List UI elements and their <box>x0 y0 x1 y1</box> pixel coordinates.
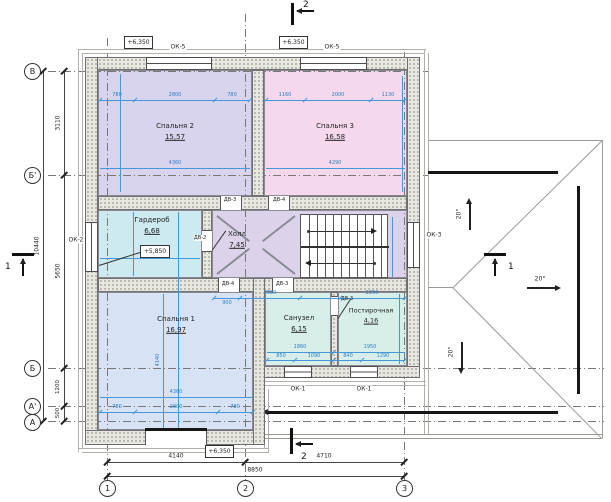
door-tag-dv3: ДВ-3 <box>276 281 288 287</box>
room-area: 15,57 <box>165 133 185 141</box>
dim-left: 500 <box>55 408 61 419</box>
axis-circle-3: 3 <box>396 480 413 497</box>
axis-circle-1: 1 <box>99 480 116 497</box>
door-tag-dv4: ДВ-4 <box>222 281 234 287</box>
gutter-line <box>428 171 558 174</box>
slope-arrow-down <box>461 342 463 368</box>
section-1-label: 1 <box>5 262 11 272</box>
porch-opening <box>145 430 207 445</box>
slope-label: 20° <box>535 276 546 283</box>
blue-dim: 2000 <box>332 92 345 98</box>
blue-dim: 2580 <box>264 290 277 296</box>
porch-lintel <box>145 428 207 431</box>
room-name: Спальня 3 <box>316 122 354 130</box>
window-ok5-left <box>146 57 212 70</box>
wall-mid-horizontal <box>98 196 407 210</box>
room-label-bathroom: Санузел 6,15 <box>284 313 314 335</box>
stair-arrow-start <box>307 230 310 233</box>
blue-dim: 840 <box>343 353 353 359</box>
room-name: Спальня 2 <box>156 122 194 130</box>
dim-bottom-total: 8850 <box>247 467 262 474</box>
axis-line-1 <box>107 38 108 480</box>
blue-dim: 1090 <box>308 353 321 359</box>
blue-dim: 1130 <box>382 92 395 98</box>
blue-dim: 4290 <box>329 160 342 166</box>
section-2-bottom-bar <box>290 428 293 454</box>
blue-dim-line <box>100 168 250 169</box>
stair-mid-rail <box>301 246 389 248</box>
eave-line <box>424 49 425 435</box>
section-1-left-arrow-head <box>20 258 26 264</box>
wall-bedrooms-divider <box>252 70 264 196</box>
axis-line-3 <box>404 52 405 480</box>
room-area: 4,16 <box>364 317 378 325</box>
blue-dim-line <box>399 294 400 364</box>
axis-label: А' <box>29 402 37 411</box>
eave-line <box>428 53 429 435</box>
stair-arrow-up-head <box>371 228 377 234</box>
section-1-right-bar <box>484 253 506 256</box>
window-ok5-right <box>300 57 367 70</box>
blue-dim-line <box>100 412 253 413</box>
door-tag-dv4: ДВ-4 <box>273 197 285 203</box>
elevation-box-wardrobe: +5,850 <box>140 245 170 258</box>
room-name: Постирочная <box>349 307 394 315</box>
elevation-value: +6,350 <box>282 39 304 46</box>
roof-edge-right <box>602 140 603 438</box>
axis-circle-a1: А' <box>24 398 41 415</box>
blue-dim: 780 <box>227 92 237 98</box>
blue-dim-line <box>266 100 405 101</box>
blue-dim: 1950 <box>364 344 377 350</box>
eave-line <box>78 49 426 50</box>
room-label-hall: Холл 7,45 <box>228 229 246 251</box>
blue-dim: 1860 <box>294 344 307 350</box>
slope-arrow-right <box>527 287 555 289</box>
stair-arrow-down-head <box>305 260 311 266</box>
window-ok2 <box>85 222 98 272</box>
window-ok1-right <box>350 366 378 378</box>
roof-edge-top <box>428 140 602 141</box>
roof-hip-upper <box>453 140 603 287</box>
roof-edge-bottom <box>264 434 602 435</box>
eave-line <box>78 448 268 449</box>
axis-circle-b: Б <box>24 360 41 377</box>
blue-dim: 850 <box>276 353 286 359</box>
wall-right <box>407 57 420 378</box>
dim-line-bottom-total <box>107 476 404 477</box>
blue-dim: 780 <box>112 404 122 410</box>
dim-left: 3110 <box>55 115 62 130</box>
eave-line <box>82 53 83 448</box>
axis-label: 1 <box>105 484 110 493</box>
axis-label: 3 <box>402 484 407 493</box>
section-1-label: 1 <box>508 262 514 272</box>
blue-dim: 900 <box>222 300 232 306</box>
elevation-value: +6,350 <box>127 39 149 46</box>
axis-label: Б <box>30 364 36 373</box>
axis-circle-v: В <box>24 63 41 80</box>
section-2-top-bar <box>291 3 294 25</box>
wall-bedroom1-bath <box>253 278 265 445</box>
room-area: 16,58 <box>325 133 345 141</box>
slope-arrow-down-head <box>458 368 464 374</box>
elevation-value: +6,350 <box>208 448 230 455</box>
section-2-bottom-arrow-head <box>295 441 301 447</box>
room-area: 16,97 <box>166 326 186 334</box>
wall-top <box>85 57 420 70</box>
blue-dim-line <box>392 217 393 277</box>
window-tag-ok5: ОК-5 <box>324 44 341 51</box>
room-label-laundry: Постирочная 4,16 <box>349 306 394 327</box>
roof-edge-bottom <box>264 438 602 439</box>
room-label-bedroom1: Спальня 1 16,97 <box>157 314 195 336</box>
floor-plan-canvas: 20° 20° 20° <box>0 0 611 502</box>
blue-dim-line <box>214 298 405 299</box>
section-1-left-bar <box>12 253 34 256</box>
stair-arrow-up <box>309 231 371 232</box>
blue-dim-line <box>267 360 405 361</box>
room-name: Гардероб <box>134 216 169 224</box>
eave-line <box>82 53 424 54</box>
window-tag-ok1: ОК-1 <box>356 386 373 393</box>
dim-left: 1200 <box>55 380 61 394</box>
blue-dim-line <box>100 397 253 398</box>
blue-dim: 2250 <box>366 290 379 296</box>
blue-dim: 780 <box>230 404 240 410</box>
axis-label: 2 <box>243 484 248 493</box>
door-tag-dv3: ДВ-3 <box>341 296 353 302</box>
blue-dim: 4360 <box>169 160 182 166</box>
elevation-box: +6,350 <box>205 445 234 458</box>
room-area: 6,68 <box>144 227 160 235</box>
dim-line-left-total <box>43 71 44 421</box>
axis-line-a1 <box>48 406 604 407</box>
section-2-label: 2 <box>301 452 307 462</box>
gutter-line <box>577 186 580 394</box>
slope-arrow-up <box>469 204 471 230</box>
axis-label: А <box>30 418 35 427</box>
eave-line <box>264 381 426 382</box>
dim-left: 5650 <box>55 263 62 278</box>
door-tag-dv2: ДВ-2 <box>194 235 206 241</box>
window-ok3 <box>407 222 420 268</box>
axis-circle-b1: Б' <box>24 167 41 184</box>
stair-arrow-down <box>311 263 373 264</box>
blue-dim: 1290 <box>377 353 390 359</box>
elevation-box: +6,350 <box>124 36 153 49</box>
section-2-label: 2 <box>303 0 309 10</box>
axis-line-b1 <box>48 175 428 176</box>
window-tag-ok3: ОК-3 <box>426 232 443 239</box>
blue-dim-line <box>266 168 405 169</box>
door-tag-dv3: ДВ-3 <box>224 197 236 203</box>
dim-left-total: 10440 <box>34 236 41 255</box>
roof-ridge <box>428 287 453 288</box>
blue-dim: 2800 <box>170 404 183 410</box>
blue-dim: 4360 <box>170 389 183 395</box>
window-tag-ok2: ОК-2 <box>68 237 85 244</box>
dim-line-bottom-chain <box>107 462 404 463</box>
window-tag-ok1: ОК-1 <box>290 386 307 393</box>
room-label-bedroom3: Спальня 3 16,58 <box>316 121 354 143</box>
blue-dim: 1160 <box>279 92 292 98</box>
axis-label: В <box>30 67 36 76</box>
room-area: 7,45 <box>229 241 245 249</box>
blue-dim-line <box>402 76 403 192</box>
wall-bottom-right <box>253 366 420 378</box>
eave-line <box>268 389 269 453</box>
section-1-right-arrow-head <box>492 258 498 264</box>
dim-bottom: 4140 <box>168 453 183 460</box>
blue-dim-line <box>120 74 121 192</box>
slope-arrow-up-head <box>466 198 472 204</box>
slope-label: 20° <box>456 209 463 220</box>
axis-line-v <box>48 71 428 72</box>
room-area: 6,15 <box>291 325 307 333</box>
room-name: Холл <box>228 230 246 238</box>
axis-line-a <box>48 421 604 422</box>
room-name: Санузел <box>284 314 314 322</box>
room-label-wardrobe: Гардероб 6,68 <box>134 215 169 237</box>
dim-bottom: 4710 <box>316 453 331 460</box>
elevation-value: +5,850 <box>144 248 166 255</box>
blue-dim: 2800 <box>169 92 182 98</box>
stair-arrow-end <box>373 262 376 265</box>
elevation-box: +6,350 <box>279 36 308 49</box>
axis-circle-a: А <box>24 414 41 431</box>
slope-label: 20° <box>448 347 455 358</box>
axis-circle-2: 2 <box>237 480 254 497</box>
blue-dim: 4140 <box>155 354 161 367</box>
staircase <box>300 214 388 278</box>
window-ok1-left <box>284 366 312 378</box>
blue-dim-line <box>100 100 250 101</box>
eave-line <box>264 385 426 386</box>
window-tag-ok5: ОК-5 <box>170 44 187 51</box>
room-name: Спальня 1 <box>157 315 195 323</box>
eave-line <box>78 49 79 452</box>
slope-arrow-right-head <box>555 285 561 291</box>
room-label-bedroom2: Спальня 2 15,57 <box>156 121 194 143</box>
door-opening-dv2 <box>202 230 212 252</box>
section-2-top-arrow-head <box>296 8 302 14</box>
gutter-line <box>268 411 558 414</box>
axis-label: Б' <box>29 171 37 180</box>
